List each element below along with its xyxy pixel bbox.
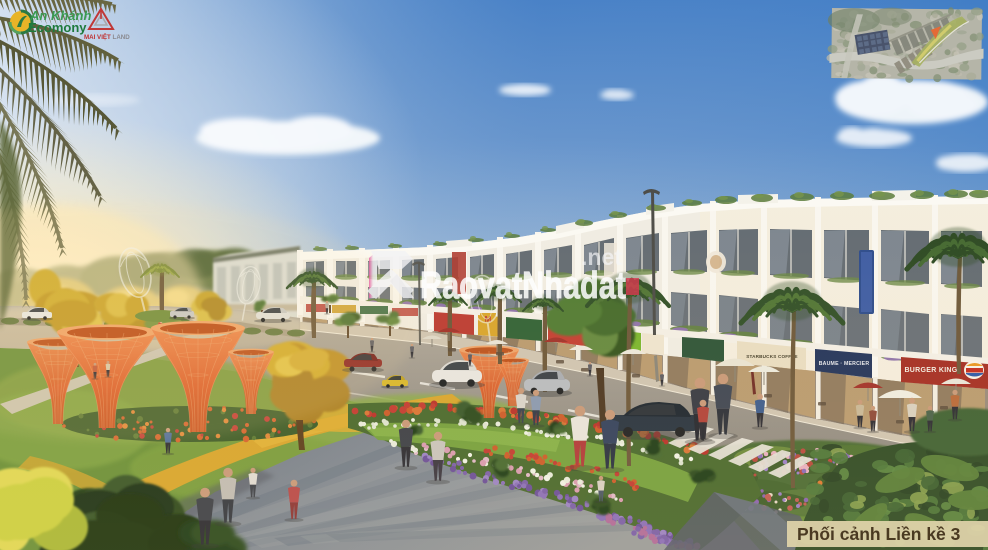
svg-text:RaovatNhadat: RaovatNhadat: [420, 265, 626, 307]
svg-text:MAI VIỆT LAND: MAI VIỆT LAND: [84, 33, 130, 41]
svg-text:Phối cảnh Liền kề 3: Phối cảnh Liền kề 3: [797, 524, 961, 544]
svg-text:Ecomony: Ecomony: [28, 20, 87, 35]
svg-text:.net: .net: [581, 244, 622, 270]
